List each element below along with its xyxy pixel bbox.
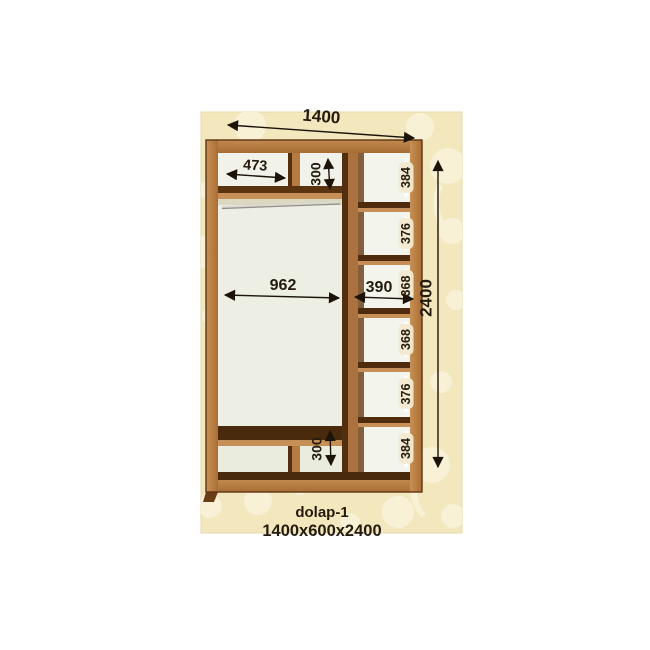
product-name: dolap-1 bbox=[295, 504, 348, 521]
dim-label-main-width: 962 bbox=[270, 277, 297, 294]
bottom-panel bbox=[206, 480, 422, 492]
shelf-dim-label-4: 368 bbox=[399, 329, 413, 350]
shelf-dim-label-1: 384 bbox=[399, 167, 413, 188]
right-column bbox=[358, 153, 410, 472]
shelf-dim-label-2: 376 bbox=[399, 223, 413, 244]
dim-label-bottom-mid-height: 300 bbox=[309, 437, 325, 461]
dim-label-top-mid-height: 300 bbox=[308, 162, 324, 186]
shelf-dim-label-6: 384 bbox=[399, 438, 413, 459]
dim-label-overall-width: 1400 bbox=[302, 106, 341, 128]
dim-label-right-col-width: 390 bbox=[366, 279, 393, 296]
left-wall bbox=[206, 140, 218, 492]
shelf-dim-label-5: 376 bbox=[399, 384, 413, 405]
product-size: 1400x600x2400 bbox=[262, 522, 381, 540]
compartment-main bbox=[218, 199, 342, 426]
central-divider bbox=[342, 153, 358, 472]
top-panel bbox=[206, 140, 422, 153]
top-shelf bbox=[218, 186, 342, 199]
wardrobe-diagram: 384 376 368 368 376 384 1400 2400 473 30… bbox=[0, 0, 650, 650]
wardrobe-diagram-page: 384 376 368 368 376 384 1400 2400 473 30… bbox=[0, 0, 650, 650]
bottom-row-divider bbox=[288, 446, 300, 472]
shelf-dim-label-3: 368 bbox=[399, 276, 413, 297]
dim-arrow-bottom-mid-height bbox=[330, 431, 331, 465]
top-row-divider bbox=[288, 153, 300, 186]
dim-label-top-left-width: 473 bbox=[243, 157, 268, 174]
dim-label-overall-height: 2400 bbox=[416, 279, 435, 317]
